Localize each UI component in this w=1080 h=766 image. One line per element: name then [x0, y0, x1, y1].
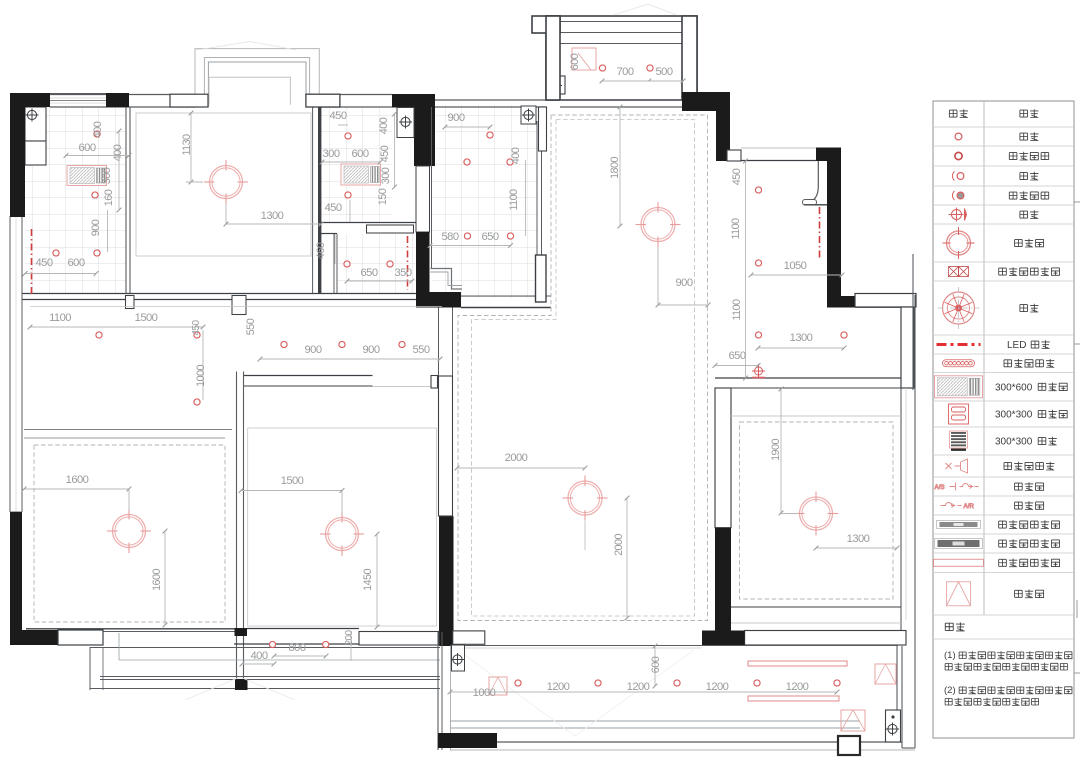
svg-text:1500: 1500: [135, 312, 158, 324]
svg-text:900: 900: [304, 344, 321, 356]
svg-text:350: 350: [394, 267, 411, 279]
svg-text:1130: 1130: [181, 134, 193, 156]
svg-text:650: 650: [728, 350, 745, 362]
svg-text:580: 580: [441, 231, 458, 243]
svg-text:700: 700: [616, 66, 633, 78]
svg-text:450: 450: [35, 257, 52, 269]
svg-text:550: 550: [245, 318, 257, 335]
svg-text:900: 900: [675, 277, 692, 289]
svg-text:800: 800: [288, 642, 305, 654]
svg-text:150: 150: [377, 188, 389, 205]
svg-text:160: 160: [103, 189, 115, 206]
svg-text:1800: 1800: [609, 157, 621, 179]
svg-text:460: 460: [315, 242, 327, 259]
svg-text:1450: 1450: [362, 569, 374, 591]
svg-text:300*600: 300*600: [995, 382, 1033, 393]
svg-text:1100: 1100: [731, 299, 743, 321]
svg-text:1300: 1300: [790, 332, 813, 344]
svg-text:1200: 1200: [706, 681, 729, 693]
svg-text:900: 900: [447, 112, 464, 124]
svg-text:1200: 1200: [547, 681, 570, 693]
svg-text:450: 450: [191, 320, 202, 336]
svg-text:(1): (1): [944, 650, 956, 661]
svg-text:1100: 1100: [730, 218, 742, 240]
svg-text:300: 300: [101, 167, 113, 184]
svg-text:400: 400: [250, 650, 267, 662]
svg-text:400: 400: [112, 144, 124, 161]
svg-text:300*300: 300*300: [995, 437, 1033, 448]
svg-text:1100: 1100: [508, 189, 520, 211]
svg-text:650: 650: [360, 267, 377, 279]
svg-text:600: 600: [351, 148, 368, 160]
svg-text:900: 900: [90, 219, 102, 236]
svg-text:300*300: 300*300: [995, 410, 1033, 421]
svg-text:1900: 1900: [770, 439, 782, 461]
svg-text:1300: 1300: [847, 533, 870, 545]
svg-text:400: 400: [378, 117, 390, 134]
svg-text:450: 450: [329, 110, 346, 122]
svg-text:1600: 1600: [66, 474, 89, 486]
svg-text:200: 200: [344, 630, 355, 646]
svg-text:2000: 2000: [505, 452, 528, 464]
svg-text:500: 500: [655, 66, 672, 78]
svg-text:550: 550: [412, 344, 429, 356]
svg-text:600: 600: [67, 257, 84, 269]
svg-text:1000: 1000: [195, 365, 207, 387]
svg-text:2000: 2000: [613, 534, 625, 556]
svg-text:1300: 1300: [261, 210, 284, 222]
svg-text:1500: 1500: [281, 475, 304, 487]
svg-text:A/S: A/S: [935, 484, 945, 491]
svg-text:1600: 1600: [151, 569, 163, 591]
svg-text:450: 450: [379, 145, 391, 162]
svg-text:1000: 1000: [473, 687, 496, 699]
svg-text:900: 900: [362, 344, 379, 356]
svg-text:400: 400: [510, 147, 522, 164]
svg-text:450: 450: [731, 168, 743, 185]
svg-text:A/R: A/R: [964, 503, 975, 510]
svg-text:(2): (2): [944, 685, 956, 696]
svg-text:600: 600: [78, 142, 95, 154]
svg-text:LED: LED: [1007, 340, 1026, 351]
svg-text:1200: 1200: [786, 681, 809, 693]
svg-text:450: 450: [324, 202, 341, 214]
svg-text:1050: 1050: [784, 260, 807, 272]
svg-text:400: 400: [92, 121, 104, 138]
svg-text:650: 650: [481, 231, 498, 243]
svg-text:300: 300: [380, 167, 392, 184]
svg-text:1100: 1100: [49, 312, 71, 324]
svg-text:300: 300: [322, 148, 339, 160]
svg-text:1200: 1200: [627, 681, 650, 693]
svg-text:600: 600: [650, 656, 662, 673]
svg-text:600: 600: [569, 53, 581, 70]
